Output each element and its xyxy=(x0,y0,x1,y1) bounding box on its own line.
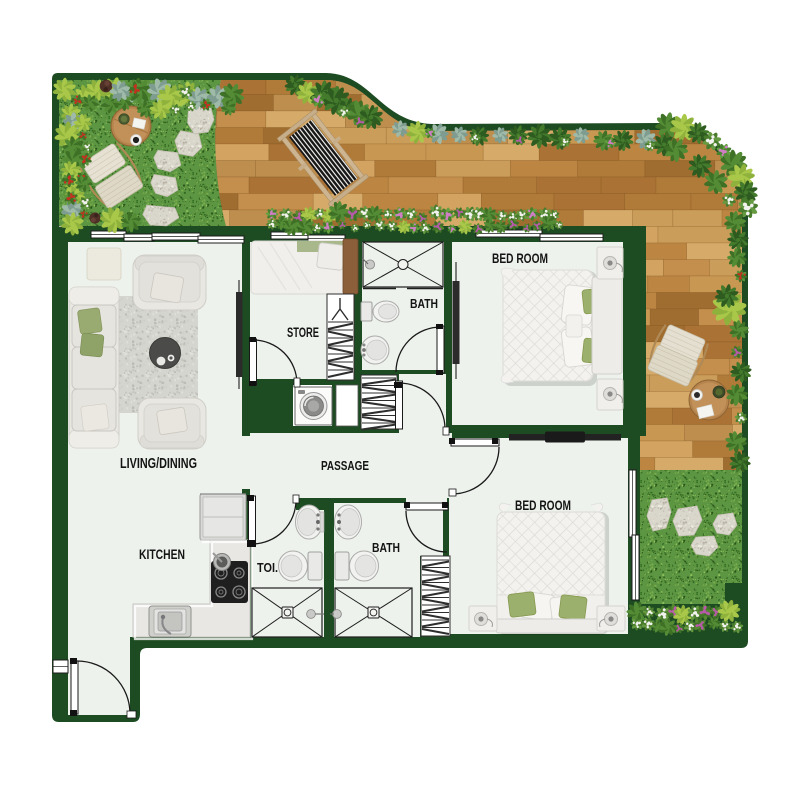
svg-text:KITCHEN: KITCHEN xyxy=(139,547,185,562)
svg-text:BED ROOM: BED ROOM xyxy=(515,497,571,513)
svg-text:BED ROOM: BED ROOM xyxy=(492,250,548,266)
svg-text:BATH: BATH xyxy=(410,296,438,311)
svg-text:PASSAGE: PASSAGE xyxy=(321,458,369,473)
svg-text:STORE: STORE xyxy=(287,325,319,340)
svg-text:TOI.: TOI. xyxy=(257,560,278,575)
svg-text:BATH: BATH xyxy=(372,541,400,555)
svg-text:LIVING/DINING: LIVING/DINING xyxy=(120,456,197,472)
